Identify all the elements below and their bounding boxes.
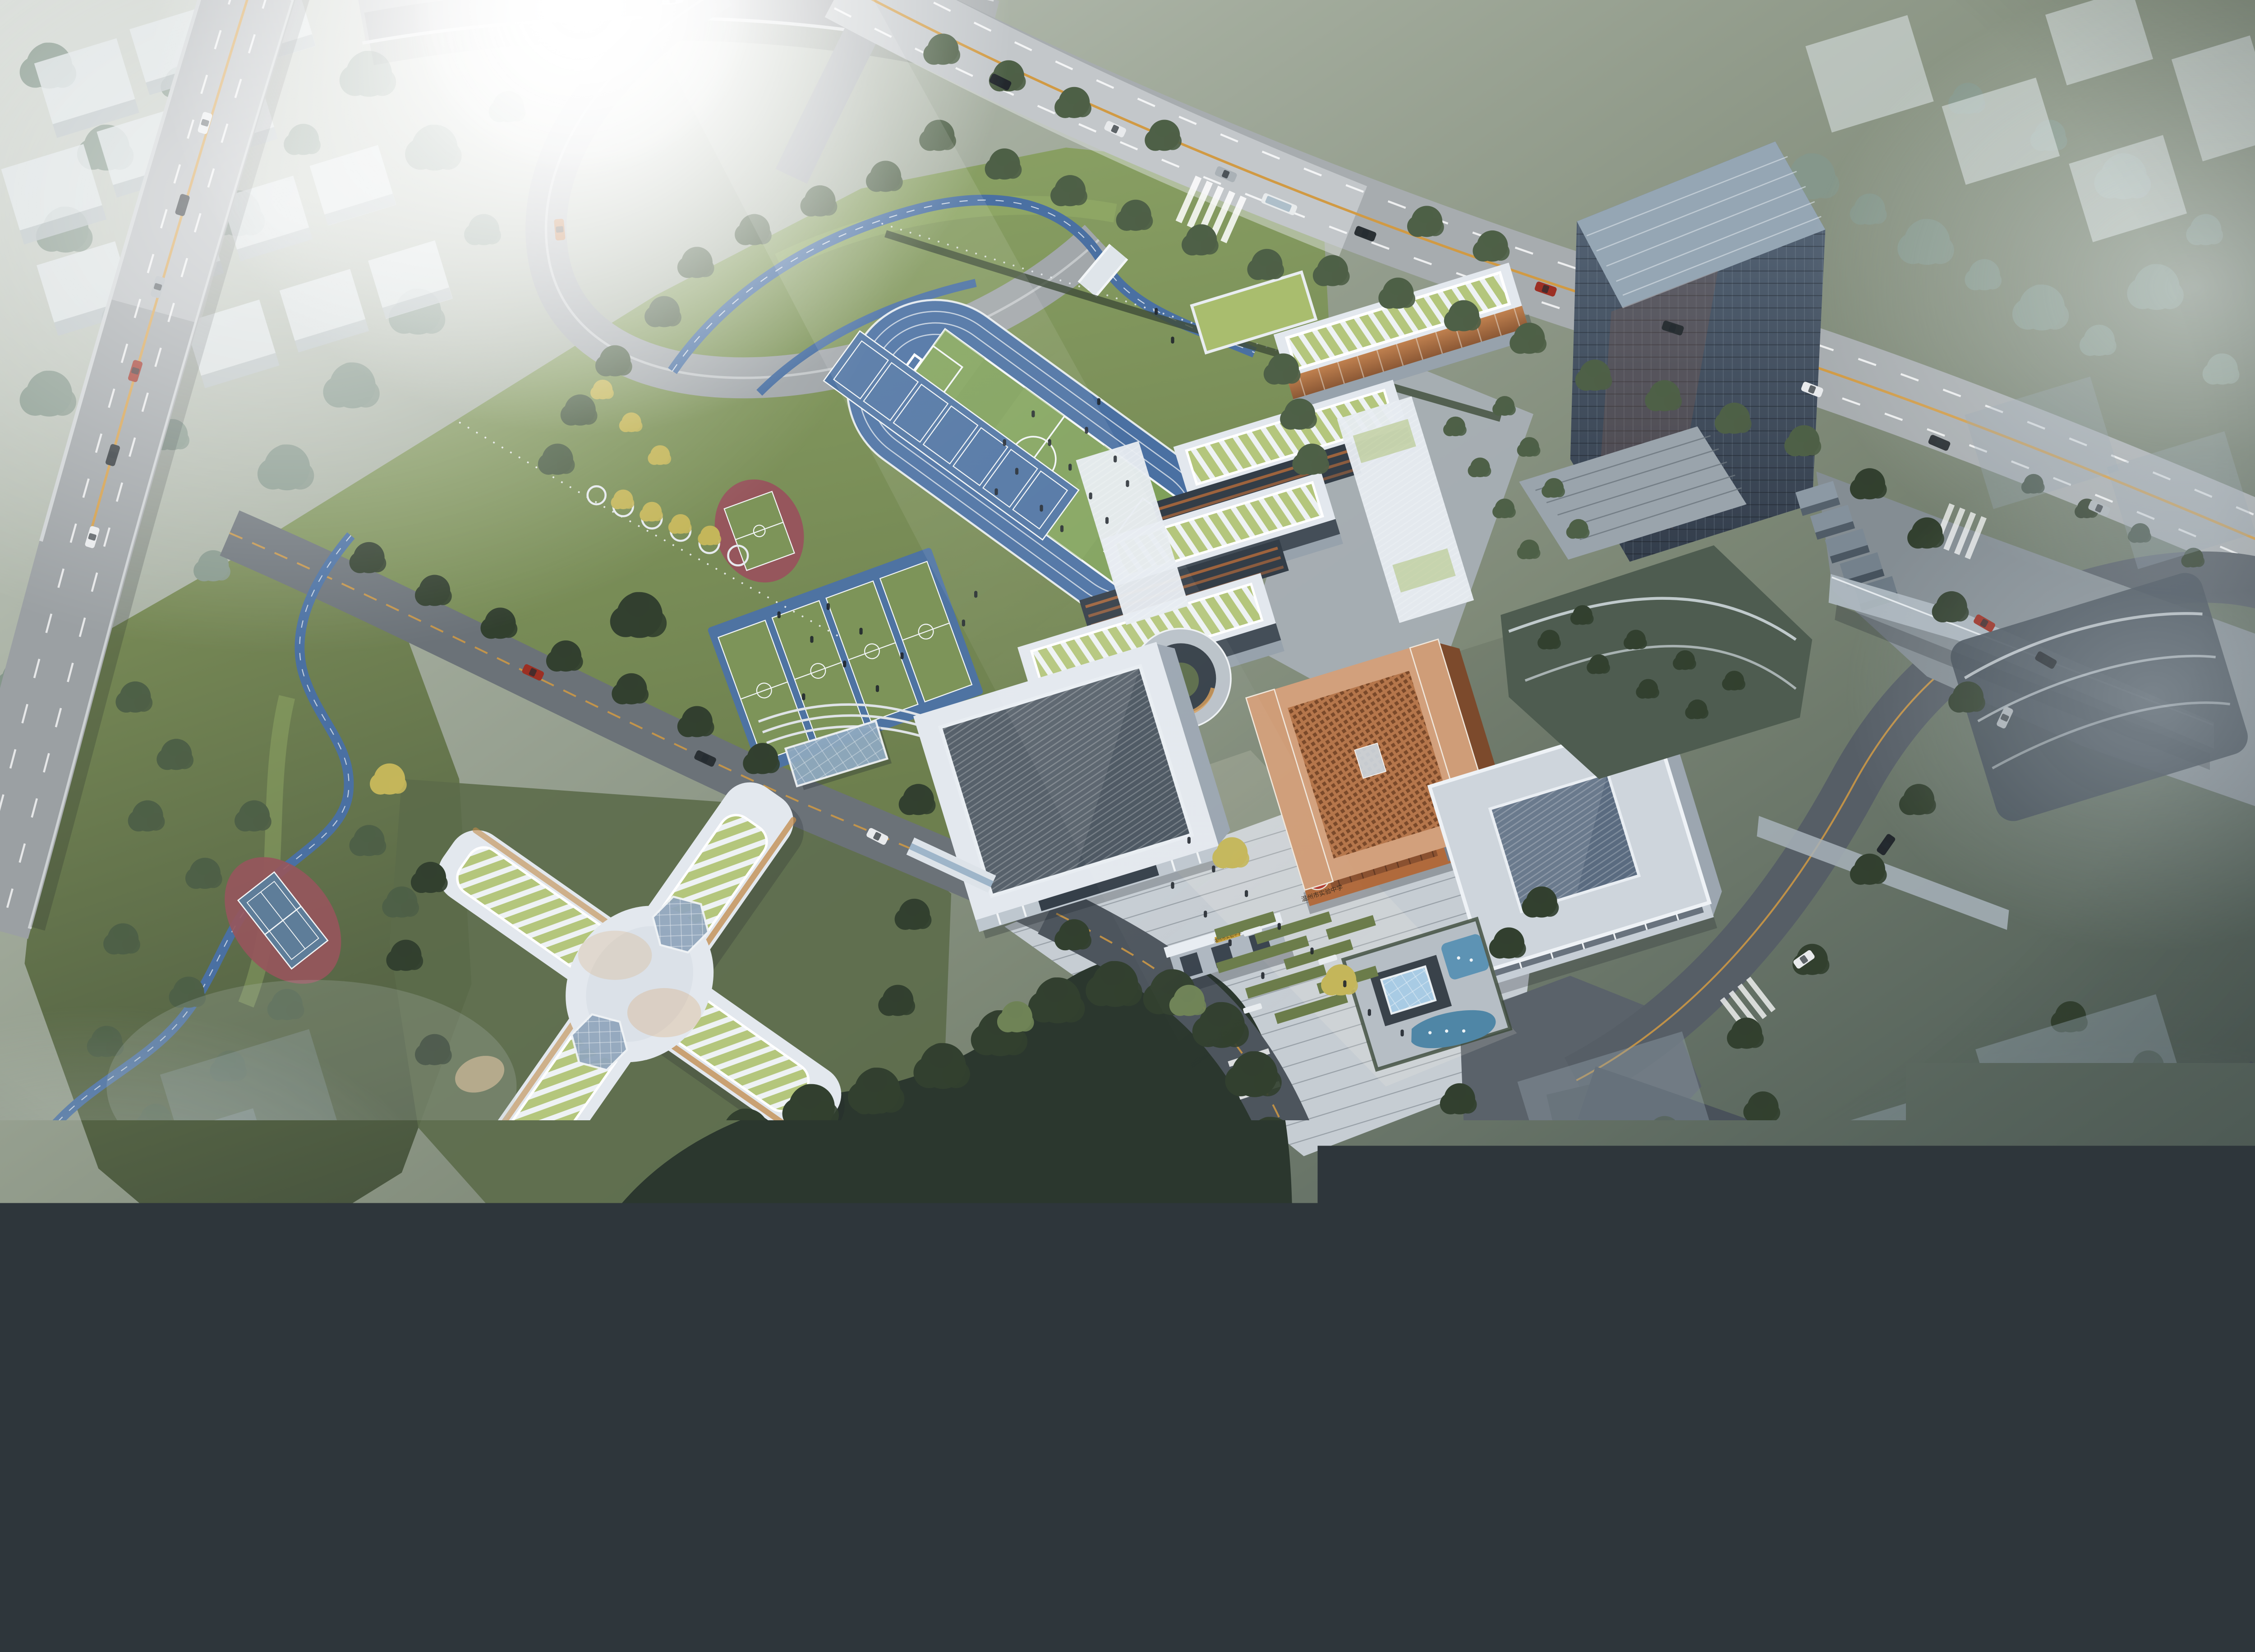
atmosphere <box>0 0 2255 1502</box>
aerial-campus-rendering: 實 温州市实验中学 温州市实验中学 <box>0 0 2255 1502</box>
scene-canvas: 實 温州市实验中学 温州市实验中学 <box>0 0 2255 1502</box>
vignette <box>0 0 2255 1502</box>
